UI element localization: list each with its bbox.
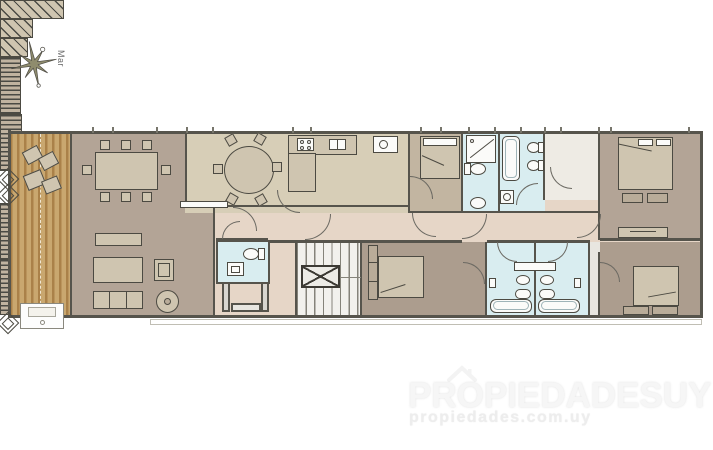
window-mullion	[156, 127, 158, 133]
wall-bath3-bath4	[534, 242, 536, 316]
towel-hook	[489, 278, 496, 288]
toilet-tank	[464, 163, 471, 175]
dining-chair	[272, 162, 282, 172]
toilet-tank	[258, 248, 265, 260]
headboard-divider	[369, 281, 377, 282]
wall-bedroom-bath1	[461, 132, 463, 213]
dining-chair	[82, 165, 92, 175]
window-mullion	[610, 127, 612, 133]
bidet-icon	[515, 289, 531, 299]
dining-table	[95, 152, 158, 190]
bed-bench	[622, 193, 643, 203]
wall-hall-south-2	[268, 240, 362, 243]
wall-stairwell-right	[360, 242, 362, 316]
shower-drain	[470, 139, 474, 143]
window-mullion	[292, 127, 294, 133]
stove-burner	[300, 140, 304, 144]
bidet-tank	[538, 160, 544, 171]
decor-diamond-inner	[2, 189, 15, 202]
window-mullion	[560, 127, 562, 133]
vanity-basin	[503, 193, 511, 201]
dining-chair	[100, 140, 110, 150]
window-mullion	[112, 127, 114, 133]
sofa-seat-divider	[126, 292, 127, 308]
toilet-icon	[243, 248, 259, 260]
wall-laundry-bedroom	[408, 132, 410, 213]
window-mullion	[544, 127, 546, 133]
headboard-divider	[369, 262, 377, 263]
toilet-tank	[538, 142, 544, 153]
bed3-headboard	[368, 245, 378, 300]
wall-master-bedroom4	[600, 238, 701, 241]
window-mullion	[186, 127, 188, 133]
planter-dot	[40, 320, 45, 325]
towel-hook	[574, 278, 581, 288]
compass-rose-icon	[5, 34, 63, 95]
stove-burner	[307, 140, 311, 144]
stair-rail-line	[340, 277, 361, 278]
compass-sea-label: Mar	[56, 50, 66, 67]
entry-stair-rail	[222, 282, 230, 312]
decor-diamond-inner	[2, 317, 15, 330]
dining-chair	[142, 140, 152, 150]
bed-pillow	[423, 138, 457, 146]
side-table-center	[164, 298, 171, 305]
sink-divider	[337, 140, 338, 149]
dresser	[618, 227, 668, 238]
bed-pillow	[638, 139, 653, 146]
bed-bench	[647, 193, 668, 203]
bed-pillow	[656, 139, 671, 146]
window-mullion	[310, 127, 312, 133]
walk-in-closet	[545, 132, 600, 200]
stove-burner	[300, 146, 304, 150]
bath-sink	[516, 275, 530, 285]
round-dining-table	[224, 146, 274, 194]
wall-living-family	[185, 132, 187, 207]
window-mullion	[688, 127, 690, 133]
sofa	[93, 291, 143, 309]
bath-sink	[540, 275, 554, 285]
armchair-cushion	[158, 263, 170, 277]
dining-chair	[142, 192, 152, 202]
dresser-handle	[630, 231, 656, 232]
wall-bedroom3-bath3	[485, 242, 487, 316]
bed4	[633, 266, 679, 306]
bed-bench	[623, 306, 649, 315]
window-mullion	[468, 127, 470, 133]
bathtub-inner	[541, 301, 577, 310]
window-mullion	[440, 127, 442, 133]
window-mullion	[420, 127, 422, 133]
window-mullion	[212, 127, 214, 133]
hall-wardrobe	[0, 19, 33, 38]
bidet-icon	[539, 289, 555, 299]
toilet-icon	[470, 163, 486, 175]
window-mullion	[598, 127, 600, 133]
wall-outer-left	[8, 130, 11, 318]
window-mullion	[520, 127, 522, 133]
dining-chair	[213, 164, 223, 174]
dining-chair	[161, 165, 171, 175]
kitchen-peninsula	[288, 153, 316, 192]
entry-stair-rail	[261, 282, 269, 312]
toilette-basin	[231, 266, 240, 273]
console-bench	[95, 233, 142, 246]
sofa-seat-divider	[109, 292, 110, 308]
laundry-sink	[379, 140, 388, 149]
window-mullion	[494, 127, 496, 133]
balcony-ledge	[150, 319, 702, 325]
dining-chair	[100, 192, 110, 202]
bathtub-inner	[505, 139, 517, 178]
window-mullion	[92, 127, 94, 133]
shared-vanity	[514, 262, 556, 271]
coffee-table	[93, 257, 143, 283]
planter-inner	[28, 307, 56, 317]
wall-hall-south-3	[362, 240, 462, 243]
wall-deck-living	[70, 132, 72, 316]
stove-burner	[307, 146, 311, 150]
bed-bench	[652, 306, 678, 315]
dining-chair	[121, 192, 131, 202]
hall-wardrobe	[0, 0, 64, 19]
wall-hall-north-right	[408, 211, 600, 213]
bed3	[378, 256, 424, 298]
entry-stair-step	[231, 303, 261, 312]
elevator	[301, 265, 340, 288]
bathtub-inner	[493, 301, 529, 310]
floor-plan-image: Mar	[0, 0, 713, 450]
wall-outer-right	[700, 131, 703, 317]
dining-chair	[121, 140, 131, 150]
wall-living-hall	[213, 207, 215, 316]
half-wall-family	[180, 201, 228, 208]
bath-sink	[470, 197, 486, 209]
wall-bath4-duct	[588, 242, 590, 316]
wall-stairwell-left	[295, 242, 297, 316]
watermark-url: propiedades.com.uy	[409, 409, 592, 427]
